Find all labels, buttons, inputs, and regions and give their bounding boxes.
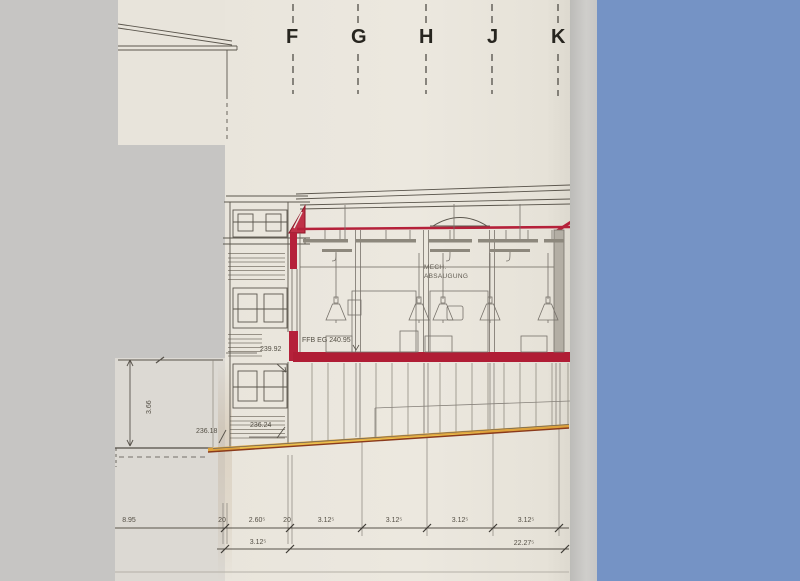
level-ground-right-label: 236.24 [250,422,271,430]
mech-absaugung-label-line2: ABSAUGUNG [424,273,468,281]
red-ceiling-line [297,227,570,229]
end-wall [554,230,564,352]
grid-label-k: K [551,26,565,49]
structural-grid-lines [293,4,558,96]
ceiling-rails [303,239,564,252]
dim-3125-c: 3.12⁵ [440,517,480,525]
ffb-level-label: FFB EG 240.95 [302,337,351,345]
scanned-drawing-page: F G H J K MECH. ABSAUGUNG FFB EG 240.95 … [0,0,800,581]
grid-label-g: G [351,26,367,49]
dimension-lines [115,524,569,572]
dim-8-95: 8.95 [109,517,149,525]
dim-3125-row2: 3.12⁵ [238,539,278,547]
dim-20-b: 20 [272,517,302,525]
skylight-dome [433,218,487,227]
level-ground-left-label: 236.18 [196,428,217,436]
dim-3125-b: 3.12⁵ [374,517,414,525]
grid-label-j: J [487,26,498,49]
dim-3125-d: 3.12⁵ [506,517,546,525]
grid-label-h: H [419,26,433,49]
red-wall-upper [290,233,297,269]
level-upper-label: 239.92 [260,346,281,354]
upper-roof-eave [118,24,237,143]
red-floor-slab [293,352,571,362]
scan-shadow-strip [570,0,597,581]
wall-box [447,306,463,320]
height-dim-label: 3.66 [146,400,154,414]
blue-background-panel [597,0,800,581]
fume-hood-right [430,291,488,352]
dim-total-22275: 22.27⁵ [504,540,544,548]
mech-absaugung-label-line1: MECH. [424,264,446,272]
dim-20-a: 20 [207,517,237,525]
dim-2-605: 2.60⁵ [237,517,277,525]
fume-hood-left [352,291,416,352]
roofline [224,185,570,226]
grid-label-f: F [286,26,298,49]
dim-3125-a: 3.12⁵ [306,517,346,525]
